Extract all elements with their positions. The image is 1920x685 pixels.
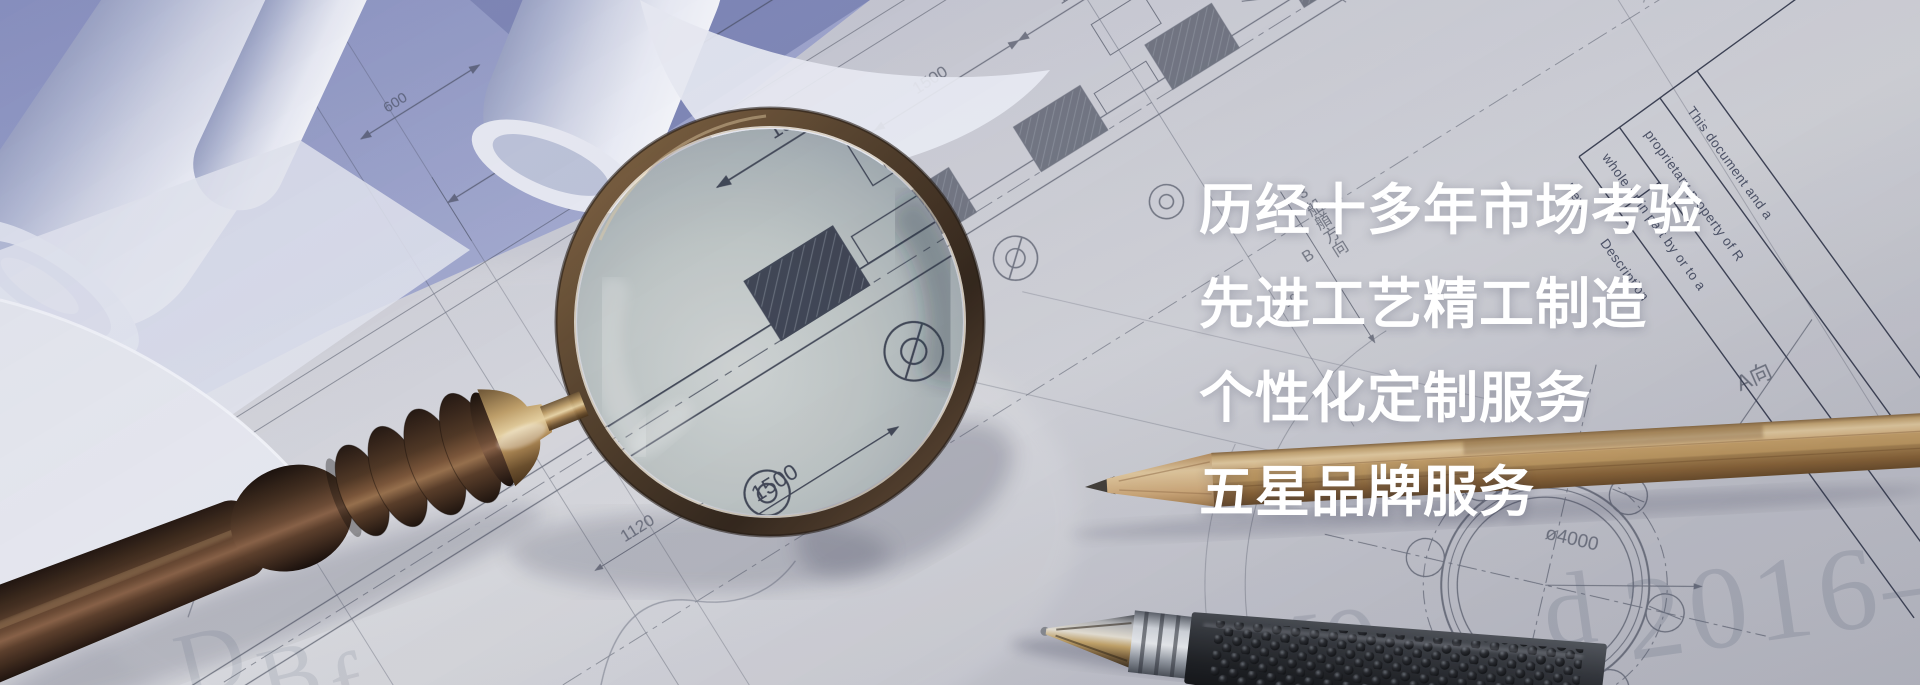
- headline-line-2: 先进工艺精工制造: [1199, 257, 1703, 351]
- hero-banner: 3900 600: [0, 0, 1920, 685]
- hero-headline: 历经十多年市场考验 先进工艺精工制造 个性化定制服务 五星品牌服务: [1199, 163, 1703, 539]
- headline-line-4: 五星品牌服务: [1199, 445, 1703, 539]
- headline-line-1: 历经十多年市场考验: [1199, 163, 1703, 257]
- headline-line-3: 个性化定制服务: [1199, 351, 1703, 445]
